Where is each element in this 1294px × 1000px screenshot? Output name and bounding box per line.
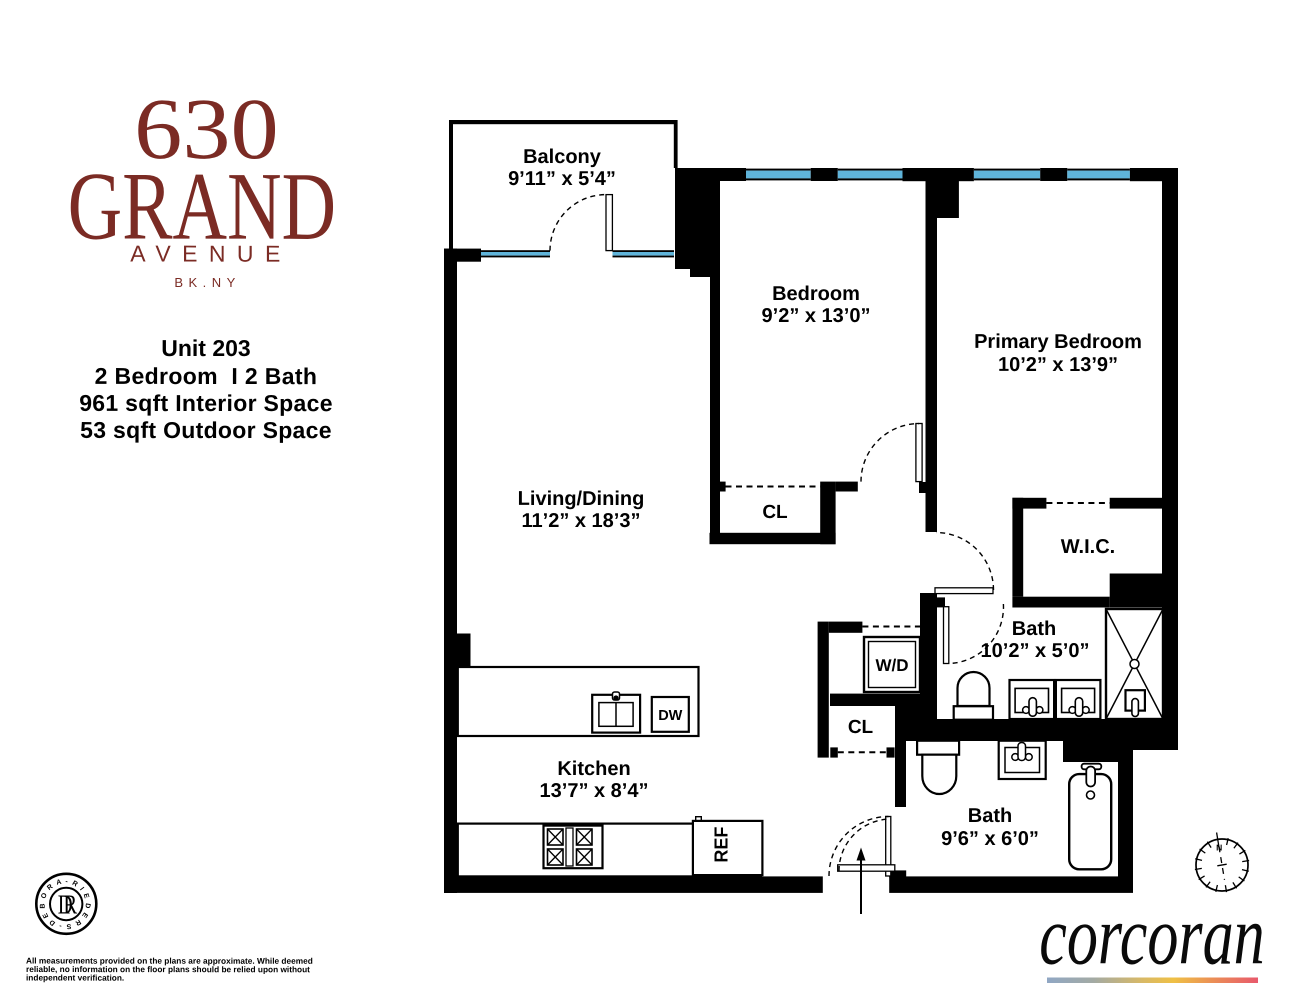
svg-text:W.I.C.: W.I.C. — [1061, 536, 1115, 558]
svg-text:9’11” x 5’4”: 9’11” x 5’4” — [508, 168, 616, 190]
svg-text:13’7” x 8’4”: 13’7” x 8’4” — [540, 780, 649, 802]
svg-text:53 sqft Outdoor Space: 53 sqft Outdoor Space — [80, 417, 332, 443]
svg-text:Bath: Bath — [968, 805, 1012, 827]
svg-text:DW: DW — [658, 708, 682, 724]
svg-text:Bedroom: Bedroom — [772, 283, 860, 305]
svg-text:Balcony: Balcony — [523, 146, 602, 168]
svg-text:W/D: W/D — [875, 656, 908, 675]
svg-text:10’2” x 5’0”: 10’2” x 5’0” — [981, 640, 1090, 662]
svg-text:CL: CL — [848, 717, 874, 738]
svg-text:GRAND: GRAND — [68, 152, 337, 259]
svg-text:corcoran: corcoran — [1039, 888, 1265, 981]
svg-text:N: N — [1216, 842, 1222, 852]
svg-text:961 sqft Interior Space: 961 sqft Interior Space — [79, 390, 333, 416]
svg-text:CL: CL — [762, 502, 788, 523]
svg-text:R: R — [63, 890, 77, 921]
svg-text:independent verification.: independent verification. — [26, 973, 124, 983]
svg-text:11’2” x 18’3”: 11’2” x 18’3” — [522, 510, 641, 532]
svg-text:9’6” x 6’0”: 9’6” x 6’0” — [941, 828, 1039, 850]
svg-text:9’2” x 13’0”: 9’2” x 13’0” — [762, 305, 871, 327]
svg-text:REF: REF — [712, 827, 732, 863]
svg-text:Primary Bedroom: Primary Bedroom — [974, 331, 1142, 353]
svg-text:Living/Dining: Living/Dining — [518, 488, 645, 510]
svg-text:10’2” x 13’9”: 10’2” x 13’9” — [998, 354, 1118, 376]
svg-text:Unit 203: Unit 203 — [161, 335, 251, 361]
svg-text:Bath: Bath — [1012, 618, 1056, 640]
svg-text:2 Bedroom I 2 Bath: 2 Bedroom I 2 Bath — [95, 363, 318, 389]
svg-text:Kitchen: Kitchen — [557, 758, 630, 780]
